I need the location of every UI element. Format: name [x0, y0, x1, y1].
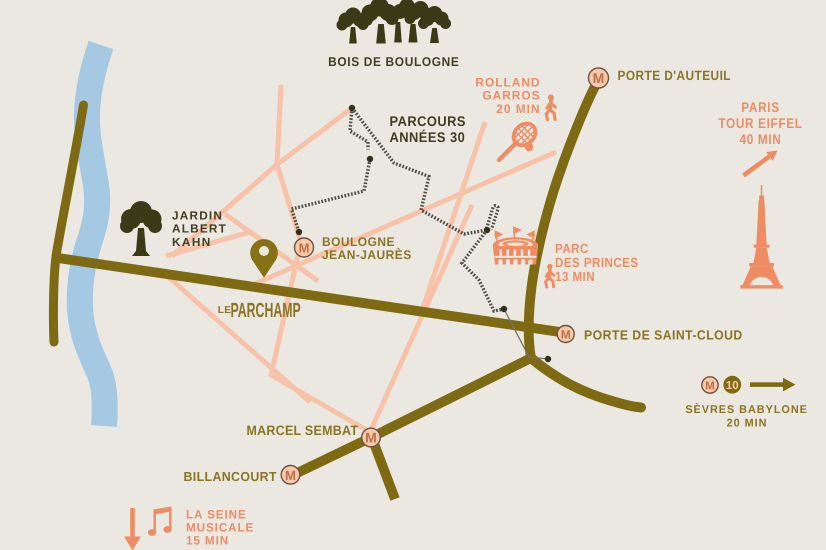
svg-text:ROLLAND: ROLLAND — [475, 76, 540, 90]
svg-text:15 MIN: 15 MIN — [186, 534, 229, 548]
svg-text:BILLANCOURT: BILLANCOURT — [184, 469, 277, 484]
svg-text:DES PRINCES: DES PRINCES — [555, 255, 639, 270]
svg-text:PORTE DE SAINT-CLOUD: PORTE DE SAINT-CLOUD — [584, 327, 743, 342]
svg-text:JARDIN: JARDIN — [172, 208, 223, 222]
svg-text:13 MIN: 13 MIN — [555, 269, 595, 284]
svg-text:SÈVRES BABYLONE: SÈVRES BABYLONE — [685, 403, 807, 416]
svg-text:MARCEL SEMBAT: MARCEL SEMBAT — [247, 423, 359, 438]
svg-text:PARIS: PARIS — [741, 99, 779, 115]
svg-text:ALBERT: ALBERT — [172, 222, 227, 236]
svg-text:M: M — [705, 379, 715, 392]
svg-text:M: M — [365, 430, 377, 446]
svg-text:10: 10 — [726, 380, 739, 392]
svg-text:LE: LE — [218, 305, 231, 316]
svg-text:M: M — [299, 240, 310, 255]
svg-text:M: M — [593, 70, 605, 86]
svg-text:M: M — [285, 468, 296, 483]
svg-text:LA SEINE: LA SEINE — [186, 507, 247, 521]
svg-text:TOUR EIFFEL: TOUR EIFFEL — [718, 115, 802, 131]
svg-text:BOIS DE BOULOGNE: BOIS DE BOULOGNE — [328, 54, 459, 69]
svg-text:40 MIN: 40 MIN — [740, 131, 782, 147]
svg-text:M: M — [561, 327, 571, 341]
svg-text:ANNÉES 30: ANNÉES 30 — [390, 129, 466, 145]
svg-text:JEAN-JAURÈS: JEAN-JAURÈS — [322, 247, 412, 262]
svg-text:KAHN: KAHN — [172, 235, 212, 249]
svg-text:PARC: PARC — [555, 241, 589, 256]
svg-text:MUSICALE: MUSICALE — [186, 521, 254, 535]
svg-text:20 MIN: 20 MIN — [496, 102, 540, 116]
svg-text:20 MIN: 20 MIN — [727, 417, 768, 429]
svg-text:PARCHAMP: PARCHAMP — [231, 299, 301, 322]
svg-text:PARCOURS: PARCOURS — [390, 113, 466, 129]
svg-text:PORTE D'AUTEUIL: PORTE D'AUTEUIL — [618, 68, 731, 83]
svg-text:GARROS: GARROS — [482, 89, 540, 103]
